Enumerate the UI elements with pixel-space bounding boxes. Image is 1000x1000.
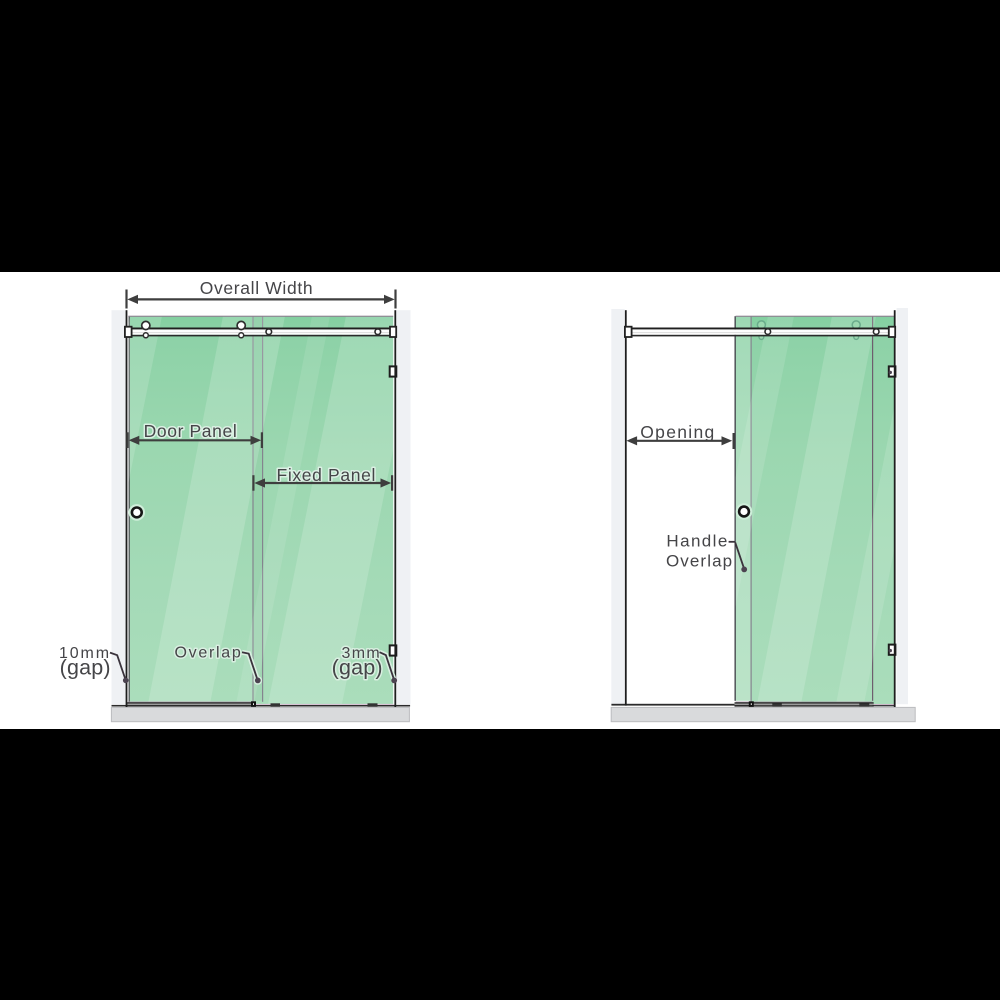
svg-text:(gap): (gap) <box>332 656 383 680</box>
svg-text:Overall Width: Overall Width <box>200 278 313 298</box>
svg-text:(gap): (gap) <box>60 656 111 680</box>
svg-text:Opening: Opening <box>640 422 715 442</box>
svg-text:Handle: Handle <box>666 532 728 551</box>
svg-text:Door Panel: Door Panel <box>144 421 238 441</box>
svg-text:Overlap: Overlap <box>666 551 733 570</box>
svg-text:Overlap: Overlap <box>175 645 243 662</box>
